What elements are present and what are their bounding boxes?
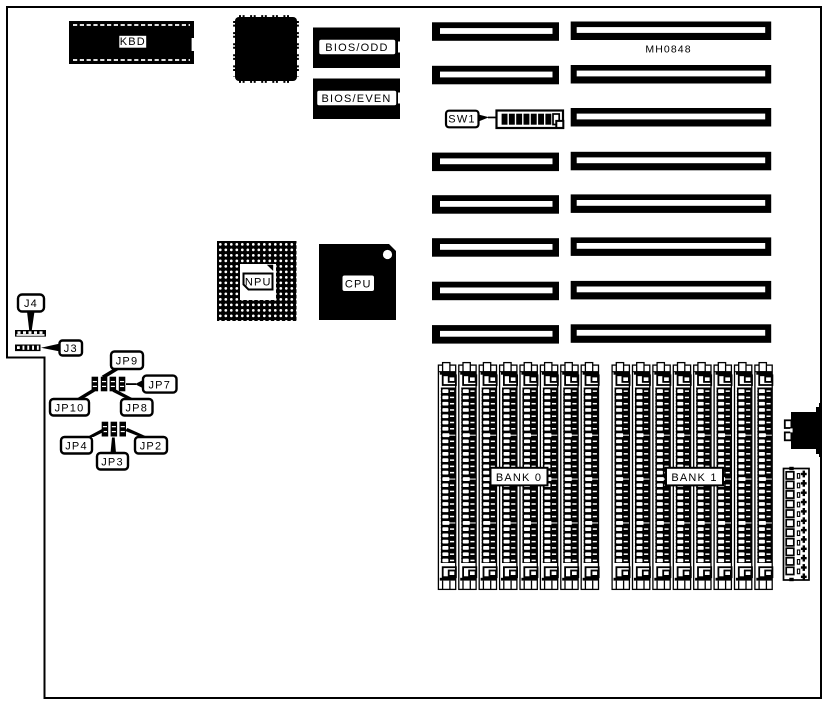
svg-text:JP10: JP10: [55, 402, 85, 414]
svg-text:BANK 1: BANK 1: [671, 472, 717, 484]
svg-text:SW1: SW1: [448, 114, 475, 126]
svg-text:MH0848: MH0848: [645, 43, 691, 55]
svg-text:BANK 0: BANK 0: [496, 472, 542, 484]
svg-text:J4: J4: [24, 298, 38, 310]
svg-text:KBD: KBD: [120, 36, 146, 48]
svg-text:JP7: JP7: [148, 379, 171, 391]
svg-text:NPU: NPU: [245, 277, 272, 289]
svg-text:JP9: JP9: [116, 355, 139, 367]
svg-text:BIOS/EVEN: BIOS/EVEN: [321, 93, 391, 105]
svg-text:JP4: JP4: [65, 440, 88, 452]
svg-text:JP3: JP3: [101, 456, 124, 468]
svg-text:CPU: CPU: [345, 278, 372, 290]
svg-text:JP8: JP8: [125, 402, 148, 414]
svg-text:J3: J3: [64, 343, 78, 355]
svg-text:BIOS/ODD: BIOS/ODD: [325, 42, 388, 54]
svg-text:JP2: JP2: [140, 440, 163, 452]
